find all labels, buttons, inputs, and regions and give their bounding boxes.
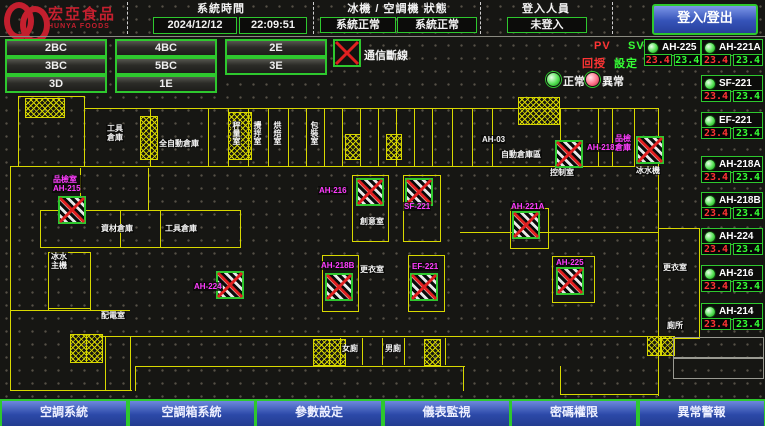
comm-lost-icon[interactable]: [356, 178, 384, 206]
wall: [322, 255, 359, 256]
wall: [18, 96, 19, 167]
wall: [699, 228, 700, 338]
status-led-icon: [704, 78, 716, 90]
plan-unit-label: AH-225: [555, 258, 585, 267]
unit-name-label: EF-221: [719, 115, 752, 126]
stairwell-hatch: [424, 339, 441, 366]
wall: [463, 366, 464, 391]
status-led-icon: [704, 268, 716, 280]
floor-button-2e[interactable]: 2E: [225, 39, 327, 57]
comm-lost-icon[interactable]: [58, 196, 86, 224]
login-user-label: 登入人員: [483, 2, 609, 16]
stairwell-hatch: [25, 98, 65, 118]
logo-subtitle: HUNYA FOODS: [48, 23, 116, 30]
floor-button-1e[interactable]: 1E: [115, 75, 217, 93]
wall: [306, 108, 307, 166]
room-label: 創意室: [359, 217, 385, 226]
room-label: 更衣室: [662, 263, 688, 272]
room-label: 秤量室: [231, 121, 241, 145]
system-date-value: 2024/12/12: [153, 17, 237, 34]
ahu-status-value: 系統正常: [397, 17, 477, 33]
chiller-status-value: 系統正常: [320, 17, 396, 33]
wall: [324, 108, 325, 166]
sv-value: 23.4: [733, 243, 763, 255]
pv-value: 23.4: [701, 243, 731, 255]
wall: [208, 108, 209, 166]
wall: [432, 108, 433, 166]
empty-unit-slot: [673, 358, 764, 379]
stairwell-hatch: [86, 334, 103, 363]
comm-lost-icon[interactable]: [555, 140, 583, 168]
unit-name-label: AH-221A: [719, 42, 761, 53]
room-label: 廁所: [666, 321, 684, 330]
unit-values: 23.423.4: [701, 54, 763, 66]
wall: [48, 308, 91, 309]
wall: [408, 255, 445, 256]
room-label: 男廁: [384, 344, 402, 353]
pv-value: 23.4: [701, 207, 731, 219]
room-label: 攪拌室: [252, 121, 262, 145]
machine-status-label: 冰機 / 空調機 狀態: [316, 2, 479, 16]
wall: [548, 208, 549, 249]
sv-value: 23.4: [733, 171, 763, 183]
wall: [352, 175, 353, 242]
unit-values: 23.423.4: [701, 90, 763, 102]
hunya-logo-icon: [4, 2, 44, 34]
nav-button-0[interactable]: 空調系統: [0, 399, 128, 426]
wall: [90, 252, 91, 310]
sv-desc-label: 設定: [614, 55, 638, 71]
wall: [10, 390, 132, 391]
wall: [408, 255, 409, 312]
stairwell-hatch: [140, 116, 158, 160]
pv-value: 23.4: [701, 90, 731, 102]
plan-unit-label: AH-224: [193, 282, 223, 291]
login-logout-button[interactable]: 登入/登出: [652, 4, 758, 35]
wall: [100, 336, 658, 337]
plan-unit-label: AH-216: [318, 186, 348, 195]
wall: [362, 338, 363, 365]
unit-values: 23.423.4: [701, 280, 763, 292]
header-divider: [612, 2, 613, 34]
sv-value: 23.4: [733, 318, 763, 330]
unit-values: 23.423.4: [701, 207, 763, 219]
unit-name-label: AH-216: [719, 268, 753, 279]
comm-lost-icon[interactable]: [556, 267, 584, 295]
wall: [445, 338, 446, 365]
wall: [240, 210, 241, 248]
wall: [160, 210, 161, 248]
floor-button-4bc[interactable]: 4BC: [115, 39, 217, 57]
pv-value: 23.4: [644, 54, 672, 66]
status-led-icon: [704, 115, 716, 127]
wall: [444, 255, 445, 312]
wall: [130, 336, 131, 391]
nav-button-1[interactable]: 空調箱系統: [128, 399, 256, 426]
status-led-icon: [704, 42, 716, 54]
unit-name-label: AH-218A: [719, 159, 761, 170]
wall: [404, 338, 405, 365]
unit-name-label: AH-214: [719, 306, 753, 317]
wall: [594, 256, 595, 303]
nav-button-2[interactable]: 參數設定: [255, 399, 383, 426]
comm-lost-icon[interactable]: [325, 273, 353, 301]
sv-value: 23.4: [733, 54, 763, 66]
stairwell-hatch: [345, 134, 361, 160]
nav-button-3[interactable]: 儀表監視: [383, 399, 511, 426]
wall: [358, 255, 359, 312]
sv-value: 23.4: [733, 127, 763, 139]
plan-unit-label: EF-221: [411, 262, 439, 271]
header-divider: [127, 2, 128, 34]
room-label: 烘焙室: [272, 121, 282, 145]
wall: [598, 108, 599, 166]
wall: [552, 256, 595, 257]
room-label: 女廁: [341, 344, 359, 353]
plan-unit-label: 品檢 倉庫: [614, 134, 632, 152]
wall: [440, 175, 441, 242]
sv-label: SV: [628, 40, 645, 52]
wall: [414, 108, 415, 166]
unit-values: 23.423.4: [701, 318, 763, 330]
stairwell-hatch: [518, 97, 560, 125]
header-separator: [0, 36, 765, 37]
room-label: 控制室: [549, 168, 575, 177]
pv-value: 23.4: [701, 171, 731, 183]
comm-lost-icon[interactable]: [410, 273, 438, 301]
wall: [510, 248, 549, 249]
floor-button-2bc[interactable]: 2BC: [5, 39, 107, 57]
plan-unit-label: 品檢室 AH-215: [52, 175, 82, 193]
normal-led-icon: [546, 72, 561, 87]
floor-button-3bc[interactable]: 3BC: [5, 57, 107, 75]
wall: [40, 210, 41, 248]
wall: [388, 175, 389, 242]
system-clock-value: 22:09:51: [239, 17, 307, 34]
wall: [560, 366, 561, 394]
comm-lost-legend-label: 通信斷線: [364, 47, 408, 63]
wall: [85, 108, 658, 109]
wall: [378, 108, 379, 166]
wall: [510, 208, 511, 249]
header-divider: [313, 2, 314, 34]
wall: [612, 108, 613, 166]
stairwell-hatch: [70, 334, 87, 363]
wall: [148, 168, 149, 210]
room-label: 冰水 主機: [50, 252, 68, 270]
nav-button-5[interactable]: 異常警報: [638, 399, 765, 426]
wall: [40, 247, 240, 248]
wall: [552, 256, 553, 303]
unit-name-label: AH-224: [719, 231, 753, 242]
room-label: 工具倉庫: [164, 224, 198, 233]
status-led-icon: [704, 306, 716, 318]
comm-lost-legend-icon: [333, 39, 361, 67]
wall: [268, 108, 269, 166]
status-led-icon: [704, 159, 716, 171]
abnormal-legend-label: 異常: [602, 73, 624, 89]
nav-button-4[interactable]: 密碼權限: [510, 399, 638, 426]
unit-values: 23.423.4: [701, 243, 763, 255]
room-label: AH-03: [481, 135, 506, 144]
wall: [403, 241, 441, 242]
wall: [48, 252, 49, 310]
status-led-icon: [647, 42, 659, 54]
pv-value: 23.4: [701, 280, 731, 292]
normal-legend-label: 正常: [563, 73, 585, 89]
pv-label: PV: [594, 40, 611, 52]
wall: [352, 241, 389, 242]
wall: [658, 228, 700, 229]
wall: [560, 394, 658, 395]
wall: [18, 96, 85, 97]
system-time-label: 系統時間: [130, 2, 312, 16]
wall: [382, 338, 383, 365]
room-label: 資材倉庫: [100, 224, 134, 233]
status-led-icon: [704, 231, 716, 243]
wall: [135, 366, 465, 367]
stairwell-hatch: [313, 339, 330, 366]
unit-values: 23.423.4: [644, 54, 701, 66]
wall: [342, 108, 343, 166]
wall: [460, 232, 658, 233]
wall: [288, 108, 289, 166]
wall: [472, 108, 473, 166]
sv-value: 23.4: [733, 90, 763, 102]
hmi-screen: 宏亞食品 HUNYA FOODS 系統時間 2024/12/12 22:09:5…: [0, 0, 765, 426]
abnormal-led-icon: [585, 72, 600, 87]
wall: [634, 108, 635, 166]
wall: [352, 175, 389, 176]
plan-unit-label: SF-221: [403, 202, 431, 211]
pv-desc-label: 回授: [582, 55, 606, 71]
login-status-value: 未登入: [507, 17, 587, 33]
wall: [408, 311, 445, 312]
room-label: 自動倉庫區: [500, 150, 542, 159]
wall: [322, 311, 359, 312]
room-label: 冰水機: [635, 166, 661, 175]
floor-button-5bc[interactable]: 5BC: [115, 57, 217, 75]
floor-button-3e[interactable]: 3E: [225, 57, 327, 75]
unit-values: 23.423.4: [701, 127, 763, 139]
wall: [452, 108, 453, 166]
pv-value: 23.4: [701, 127, 731, 139]
logo: 宏亞食品 HUNYA FOODS: [4, 2, 116, 34]
empty-unit-slot: [673, 337, 764, 358]
logo-title: 宏亞食品: [48, 7, 116, 23]
wall: [403, 175, 441, 176]
wall: [552, 302, 595, 303]
status-led-icon: [704, 195, 716, 207]
wall: [105, 336, 106, 390]
plan-unit-label: AH-221A: [510, 202, 545, 211]
sv-value: 23.4: [733, 207, 763, 219]
room-label: 包裝室: [309, 121, 319, 145]
stairwell-hatch: [386, 134, 402, 160]
unit-name-label: AH-225: [662, 42, 696, 53]
sv-value: 23.4: [674, 54, 702, 66]
unit-values: 23.423.4: [701, 171, 763, 183]
sv-value: 23.4: [733, 280, 763, 292]
room-label: 更衣室: [359, 265, 385, 274]
pv-value: 23.4: [701, 318, 731, 330]
wall: [10, 166, 11, 391]
unit-name-label: AH-218B: [719, 195, 761, 206]
comm-lost-icon[interactable]: [512, 211, 540, 239]
room-label: 全自動倉庫: [158, 139, 200, 148]
plan-unit-label: AH-218B: [320, 261, 355, 270]
header-divider: [480, 2, 481, 34]
room-label: 配電室: [100, 311, 126, 320]
wall: [84, 96, 85, 167]
pv-value: 23.4: [701, 54, 731, 66]
unit-name-label: SF-221: [719, 78, 752, 89]
floor-button-3d[interactable]: 3D: [5, 75, 107, 93]
wall: [135, 366, 136, 391]
comm-lost-icon[interactable]: [636, 136, 664, 164]
room-label: 工具 倉庫: [106, 124, 124, 142]
